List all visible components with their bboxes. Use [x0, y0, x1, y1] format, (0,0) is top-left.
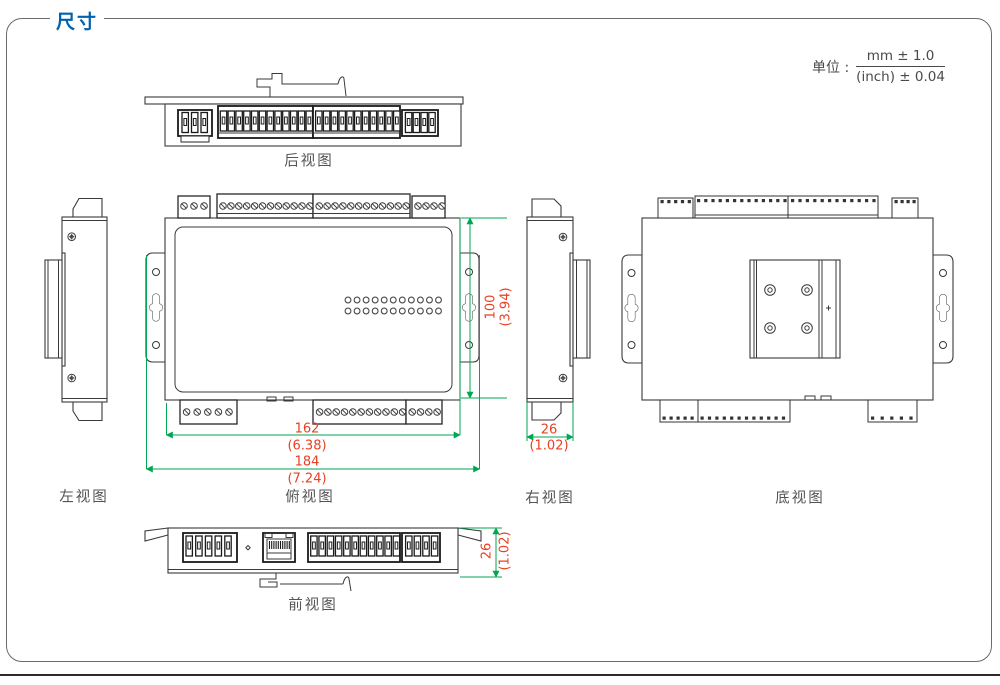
screw-row: [316, 409, 406, 416]
left-view-label: 左视图: [59, 486, 109, 507]
rail-screw: [765, 323, 776, 334]
dim-front-depth-mm: 26: [480, 543, 495, 560]
dim-height-mm: 100: [484, 295, 499, 320]
case-screw: [559, 374, 567, 382]
terminal-pins: [182, 113, 207, 133]
rail-screw: [802, 285, 813, 296]
dim-body-width-inch: (6.38): [287, 439, 326, 454]
dim-height-inch: (3.94): [499, 287, 514, 326]
unit-annotation: 单位 : mm ± 1.0 (inch) ± 0.04: [812, 48, 945, 85]
bottom-view-drawing: [615, 190, 965, 435]
terminal-pins: [311, 536, 400, 556]
terminal-pins: [186, 536, 231, 556]
case-screw: [68, 374, 76, 382]
case-screw: [559, 233, 567, 241]
dim-body-width-mm: 162: [295, 422, 320, 437]
bottom-view-label: 底视图: [775, 487, 825, 508]
led-row: [345, 308, 441, 314]
right-view-label: 右视图: [525, 487, 575, 508]
rail-screw: [802, 323, 813, 334]
right-view-drawing: [520, 185, 600, 460]
din-rail-plate: [750, 260, 840, 358]
footer-rule: [0, 674, 1000, 676]
case-screw: [68, 233, 76, 241]
rail-screw: [765, 285, 776, 296]
rear-view-label: 后视图: [284, 150, 334, 171]
dim-front-depth-inch: (1.02): [498, 531, 513, 570]
din-clip-icon: [257, 74, 346, 98]
front-view-label: 前视图: [288, 594, 338, 615]
screw-row: [181, 203, 208, 210]
top-view-drawing: [135, 190, 525, 500]
page-title: 尺寸: [50, 7, 104, 34]
dimension-drawing-page: 尺寸 单位 : mm ± 1.0 (inch) ± 0.04 后视图: [0, 0, 1000, 685]
unit-mm: mm ± 1.0: [856, 48, 945, 67]
dim-overall-width-mm: 184: [295, 455, 320, 470]
led-row: [345, 297, 441, 303]
unit-fraction: mm ± 1.0 (inch) ± 0.04: [856, 48, 945, 85]
din-clip-icon: [260, 573, 351, 591]
dim-side-depth-inch: (1.02): [529, 439, 568, 454]
dim-overall-width-inch: (7.24): [287, 472, 326, 487]
terminal-pins: [316, 111, 400, 131]
unit-label: 单位 :: [812, 57, 849, 77]
top-view-label: 俯视图: [285, 486, 335, 507]
dim-side-depth-mm: 26: [541, 423, 558, 438]
left-view-drawing: [40, 185, 120, 435]
unit-inch: (inch) ± 0.04: [856, 67, 945, 85]
